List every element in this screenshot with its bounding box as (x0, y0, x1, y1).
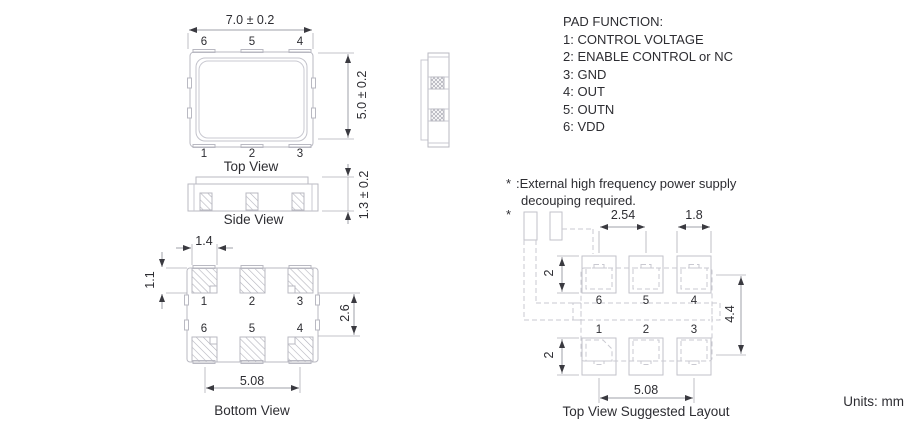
layout-pad-width-dimension: 1.8 (674, 208, 714, 222)
layout-row-span-dimension: 4.4 (723, 298, 737, 330)
bottom-view-row-gap-dimension: 2.6 (338, 296, 352, 330)
top-view-pin-5: 5 (245, 36, 259, 48)
bottom-view-pad-width-dimension: 1.4 (184, 234, 224, 248)
bottom-view-drawing (185, 266, 320, 364)
pad-function-block: PAD FUNCTION: 1: CONTROL VOLTAGE 2: ENAB… (563, 13, 733, 136)
layout-top-pitch-dimension: 2.54 (600, 208, 646, 222)
top-view-pin-6: 6 (197, 36, 211, 48)
top-view-pin-3: 3 (293, 148, 307, 160)
layout-pin-2: 2 (639, 324, 653, 336)
layout-asterisk: * (506, 207, 511, 222)
layout-view-title: Top View Suggested Layout (546, 404, 746, 419)
top-view-pin-1: 1 (197, 148, 211, 160)
side-view-drawing (188, 177, 318, 211)
layout-pin-4: 4 (687, 295, 701, 307)
bottom-view-title: Bottom View (202, 403, 302, 418)
bottom-view-pad-height-dimension: 1.1 (143, 263, 157, 297)
end-view-drawing (421, 53, 449, 147)
side-view-title: Side View (211, 212, 296, 227)
pad-function-item-1: 1: CONTROL VOLTAGE (563, 31, 733, 49)
top-view-dimensions (188, 30, 354, 139)
bottom-view-pitch-dimension: 5.08 (229, 374, 275, 388)
pad-function-item-3: 3: GND (563, 66, 733, 84)
layout-pin-6: 6 (592, 295, 606, 307)
layout-top-pad-height-dimension: 2 (542, 259, 556, 287)
bottom-view-pin-5: 5 (245, 323, 259, 335)
side-view-thickness-dimension: 1.3 ± 0.2 (357, 155, 371, 235)
bottom-view-pin-2: 2 (245, 296, 259, 308)
pad-function-item-4: 4: OUT (563, 83, 733, 101)
pad-function-item-6: 6: VDD (563, 118, 733, 136)
top-view-pin-4: 4 (293, 36, 307, 48)
side-view-dimensions (322, 164, 354, 224)
layout-bottom-pad-height-dimension: 2 (542, 341, 556, 369)
bottom-view-pin-1: 1 (197, 296, 211, 308)
bottom-view-pin-3: 3 (293, 296, 307, 308)
bottom-view-pin-6: 6 (197, 323, 211, 335)
layout-pin-5: 5 (639, 295, 653, 307)
note-line-2: decouping required. (521, 193, 636, 208)
datasheet-drawing-page: 7.0 ± 0.2 5.0 ± 0.2 6 5 4 1 2 3 Top View… (0, 0, 909, 429)
layout-bottom-pitch-dimension: 5.08 (623, 383, 669, 397)
note-asterisk: * (506, 176, 511, 191)
pad-function-item-2: 2: ENABLE CONTROL or NC (563, 48, 733, 66)
pad-function-item-5: 5: OUTN (563, 101, 733, 119)
drawing-canvas (0, 0, 909, 429)
units-label: Units: mm (826, 394, 904, 409)
top-view-title: Top View (211, 159, 291, 174)
top-view-height-dimension: 5.0 ± 0.2 (355, 55, 369, 135)
pad-function-title: PAD FUNCTION: (563, 13, 733, 31)
top-view-drawing (188, 50, 316, 148)
note-line-1: :External high frequency power supply (516, 176, 736, 191)
bottom-view-pin-4: 4 (293, 323, 307, 335)
layout-pin-3: 3 (687, 324, 701, 336)
layout-view-dimensions (557, 227, 746, 403)
top-view-width-dimension: 7.0 ± 0.2 (205, 13, 295, 27)
layout-pin-1: 1 (592, 324, 606, 336)
